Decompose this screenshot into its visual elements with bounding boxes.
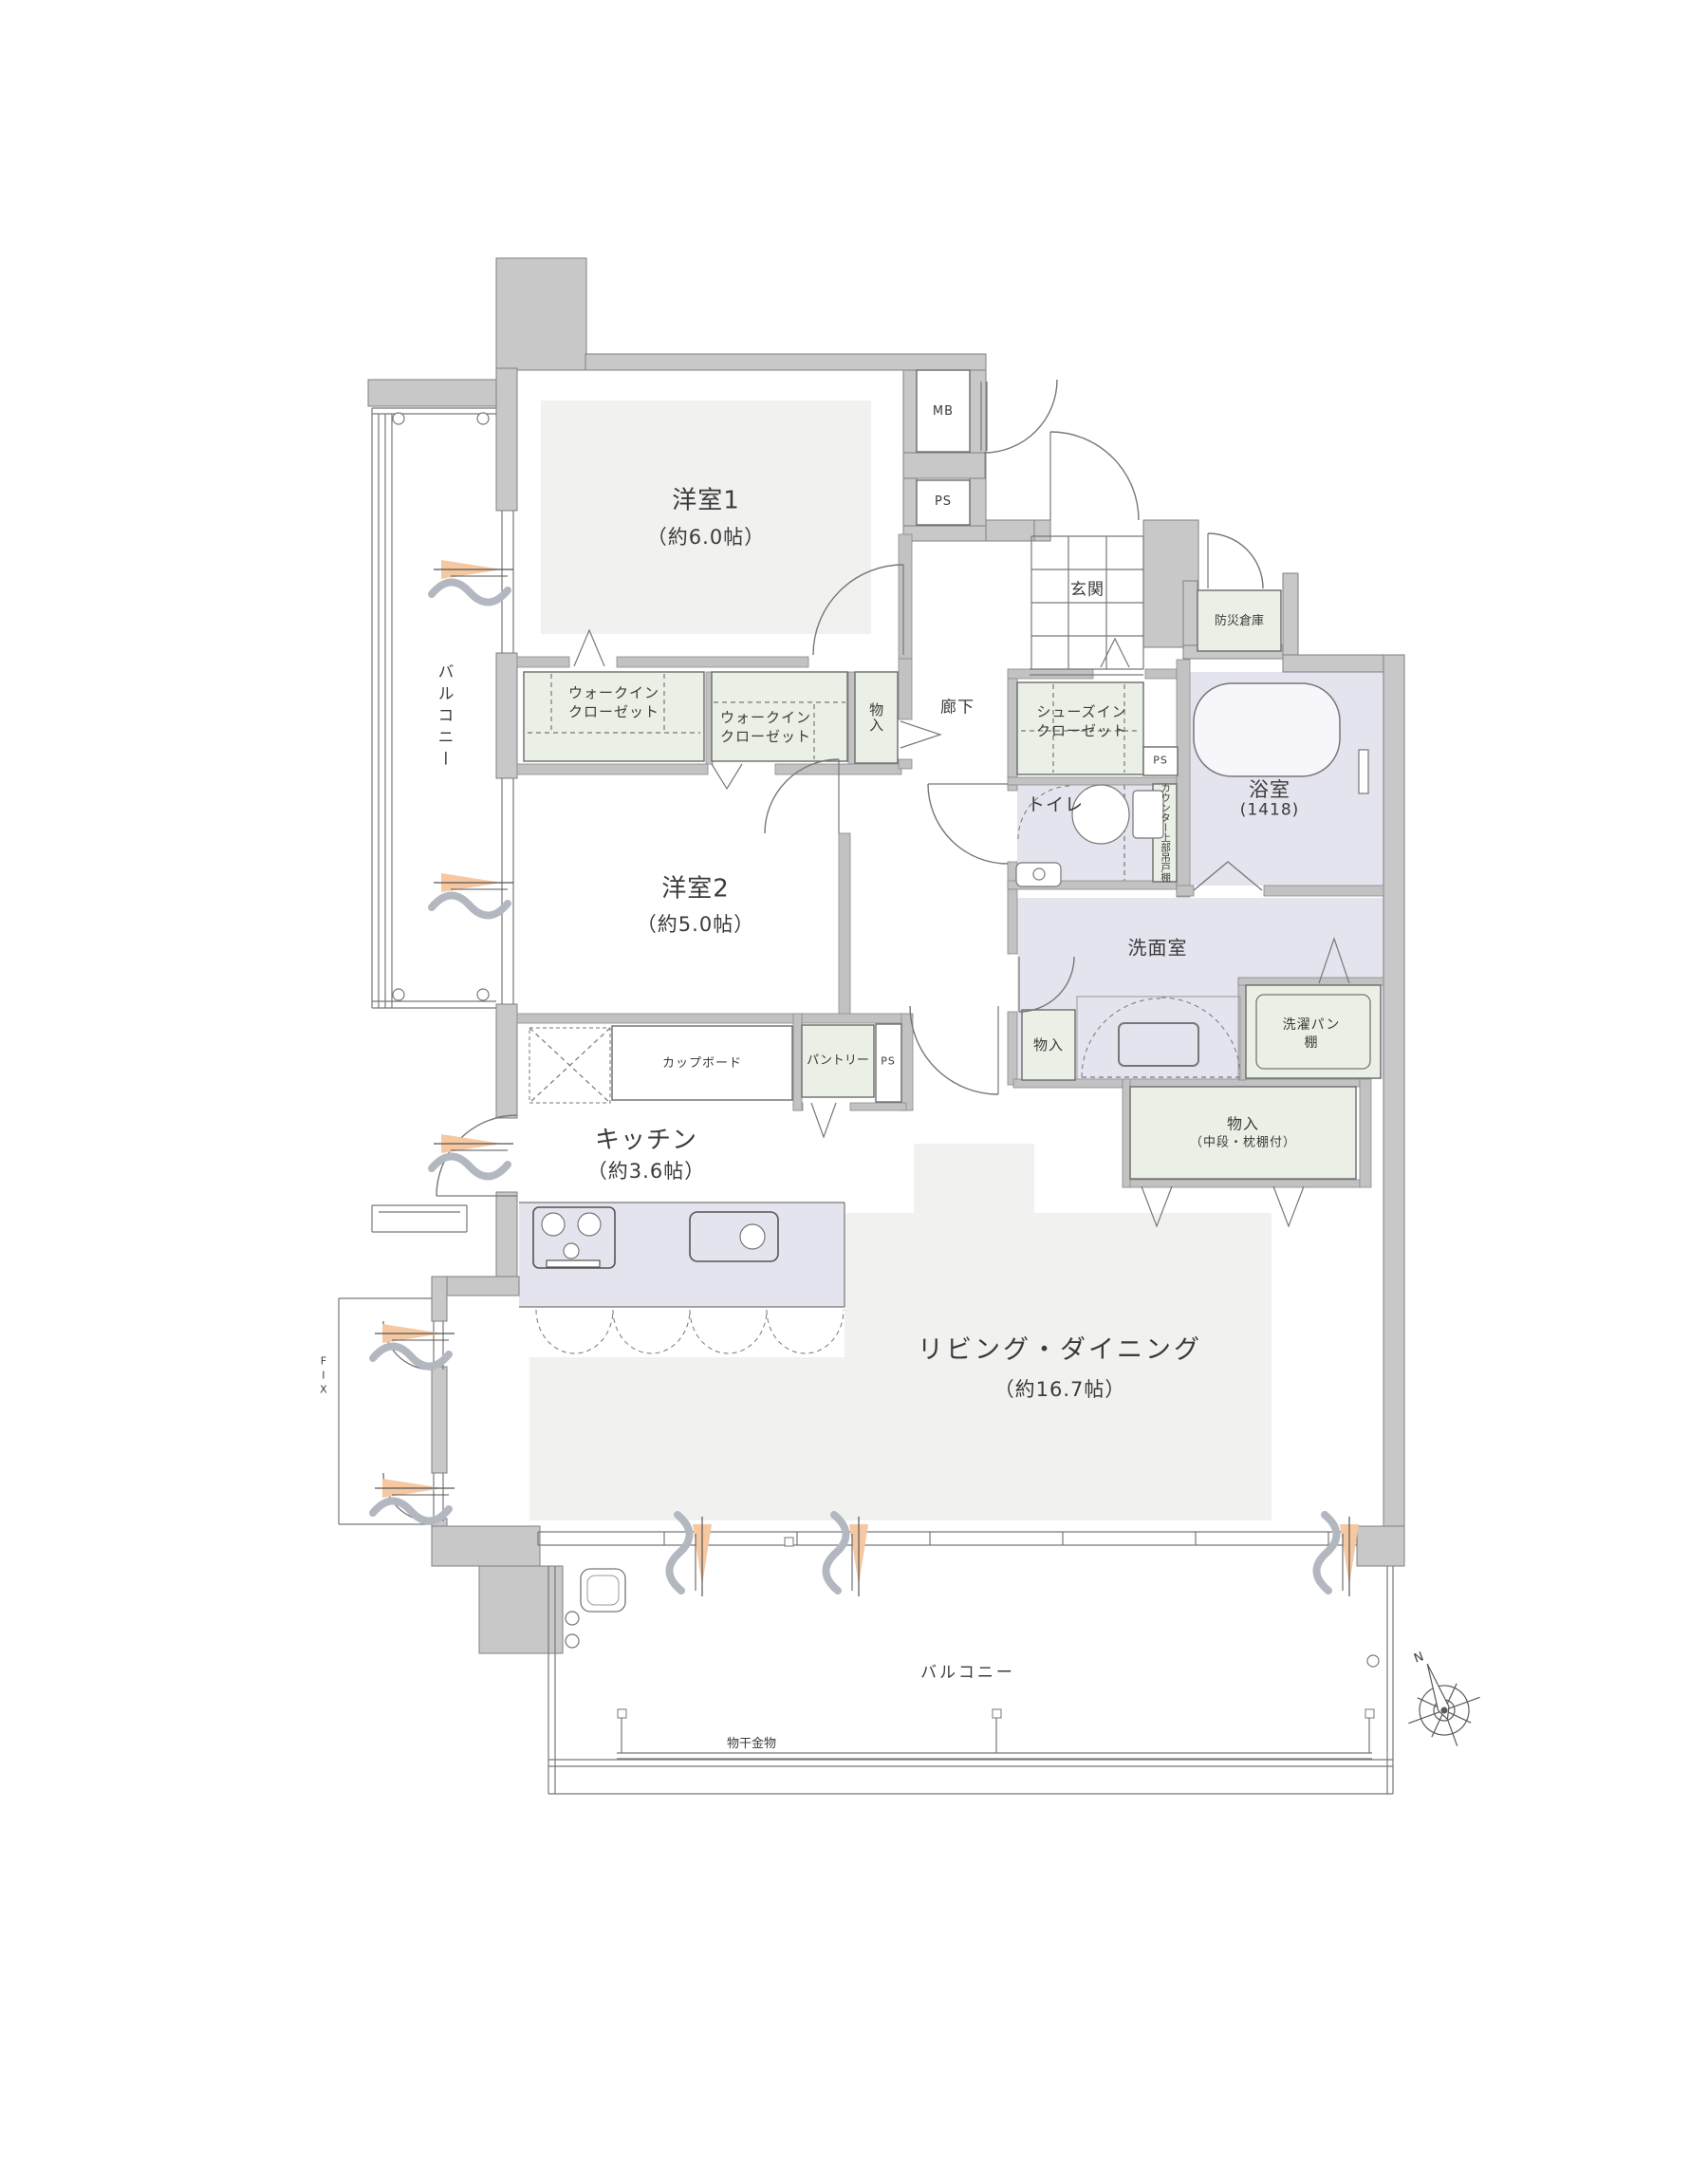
room-label-yoshitsu1: 洋室1 xyxy=(672,484,740,517)
label-ps-bath: PS xyxy=(1153,755,1168,769)
storage-label-laundry-shelf: 洗濯パン棚 xyxy=(1283,1016,1341,1053)
storage-label-monoire-wash: 物入 xyxy=(1033,1035,1064,1054)
label-mb: MB xyxy=(933,403,954,420)
floorplan-drawing xyxy=(0,0,1708,2182)
storage-label-wic1: ウォークインクローゼット xyxy=(568,683,659,722)
compass-icon xyxy=(1392,1650,1494,1759)
room-label-balcony-bottom: バルコニー xyxy=(920,1663,1015,1685)
room-size-bath: (1418) xyxy=(1240,800,1300,822)
room-size-living-dining: （約16.7帖） xyxy=(994,1376,1126,1403)
room-label-hallway: 廊下 xyxy=(940,698,975,719)
room-label-toilet: トイレ xyxy=(1027,793,1084,818)
storage-label-cupboard: カップボード xyxy=(662,1055,742,1072)
storage-label-bosai: 防災倉庫 xyxy=(1215,613,1264,630)
room-size-yoshitsu1: （約6.0帖） xyxy=(647,524,765,550)
storage-label-counter-shelf: カウンター上部吊戸棚 xyxy=(1159,783,1172,883)
storage-label-monoire-hall: 物入 xyxy=(866,702,885,733)
room-size-kitchen: （約3.6帖） xyxy=(587,1158,705,1184)
storage-label-wic2: ウォークインクローゼット xyxy=(720,708,811,747)
storage-label-shoes-closet: シューズインクローゼット xyxy=(1036,702,1127,741)
label-ps-top: PS xyxy=(935,494,952,511)
room-label-balcony-left: バルコニー xyxy=(433,663,455,773)
floorplan: 洋室1 （約6.0帖） 洋室2 （約5.0帖） キッチン （約3.6帖） リビン… xyxy=(0,0,1708,2182)
label-fix-window: FIX xyxy=(316,1355,330,1398)
room-label-living-dining: リビング・ダイニング xyxy=(918,1333,1202,1368)
label-ps-pantry: PS xyxy=(881,1055,896,1070)
room-label-washroom: 洗面室 xyxy=(1128,936,1188,961)
room-label-yoshitsu2: 洋室2 xyxy=(661,872,730,905)
storage-label-monoire-ld: 物入（中段・枕棚付） xyxy=(1190,1113,1296,1150)
room-label-kitchen: キッチン xyxy=(595,1124,697,1157)
storage-label-pantry: パントリー xyxy=(807,1053,869,1070)
room-label-genkan: 玄関 xyxy=(1070,580,1105,602)
room-size-yoshitsu2: （約5.0帖） xyxy=(637,911,754,938)
label-monohoshi: 物干金物 xyxy=(727,1736,776,1753)
